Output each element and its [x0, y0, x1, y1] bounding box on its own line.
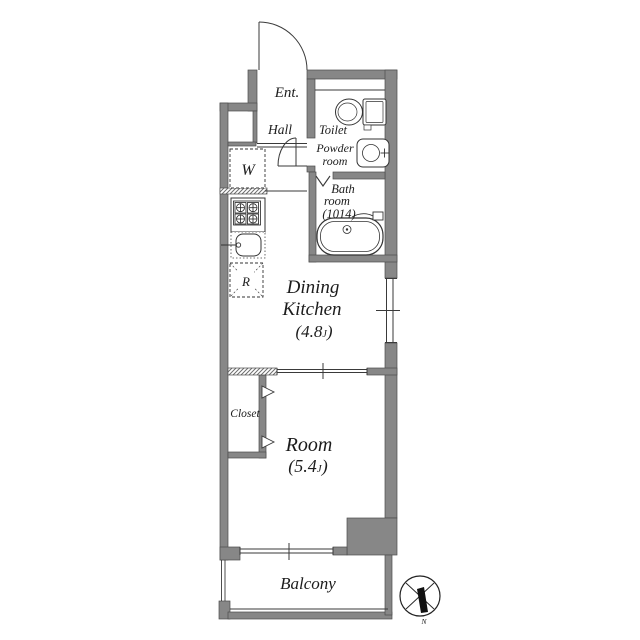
balcony-window — [240, 543, 333, 560]
hall-label: Hall — [267, 122, 292, 137]
wall-room-bottom-left — [220, 547, 240, 560]
wall-balcony-bottom — [228, 612, 392, 619]
powder-room-fixtures — [357, 139, 389, 167]
toilet-flush-button — [364, 125, 371, 130]
wall-toilet-left-upper — [307, 79, 315, 138]
wall-right-upper — [385, 70, 397, 278]
wall-nook-right — [253, 111, 257, 143]
refrigerator-label: R — [241, 274, 250, 289]
balcony-label: Balcony — [280, 574, 336, 593]
floor-plan-image: Ent. Hall Toilet Powder room Bath room (… — [0, 0, 640, 640]
kitchen-counter — [231, 198, 265, 232]
closet-arrow-icon — [262, 436, 274, 448]
bath-room-label-3: (1014) — [322, 207, 355, 221]
hatched-wall-dk-room — [228, 368, 277, 375]
dk-window — [376, 279, 400, 343]
toilet-bowl-inner — [338, 103, 357, 121]
bathtub-inner — [321, 222, 380, 252]
closet-arrow-icon — [262, 386, 274, 398]
bath-room-label-2: room — [324, 194, 350, 208]
hall-door-icon — [278, 138, 296, 166]
north-compass-icon: N — [400, 576, 440, 626]
wall-balcony-right — [385, 555, 392, 615]
closet-label: Closet — [230, 408, 260, 420]
wall-nook-bottom — [228, 142, 256, 146]
dining-kitchen-label-1: Dining — [286, 277, 340, 298]
wall-bath-left — [309, 172, 316, 262]
washing-machine-label: W — [241, 162, 256, 179]
floor-plan-svg: Ent. Hall Toilet Powder room Bath room (… — [0, 0, 640, 640]
toilet-tank-inner — [366, 102, 383, 123]
room-labels: Ent. Hall Toilet Powder room Bath room (… — [230, 85, 355, 593]
wall-divider-right — [367, 368, 397, 375]
wall-closet-bottom — [228, 452, 266, 458]
entrance-step — [257, 144, 307, 148]
wall-bath-top — [333, 172, 385, 179]
wall-left-main — [220, 103, 228, 560]
room-area: (5.4J) — [288, 456, 327, 477]
bath-folding-door-icon — [316, 176, 330, 186]
dining-kitchen-label-2: Kitchen — [281, 299, 341, 320]
powder-room-label-2: room — [323, 154, 348, 168]
wall-top-right — [307, 70, 397, 79]
dk-room-sliding-door — [277, 363, 367, 379]
room-label: Room — [285, 434, 333, 456]
compass-north-label: N — [420, 617, 427, 626]
entrance-label: Ent. — [274, 85, 300, 101]
wall-room-bottom-mid — [333, 547, 347, 555]
wall-notch-bottom-right — [347, 518, 397, 555]
wall-bath-bottom — [309, 255, 397, 262]
washbasin-bowl — [363, 145, 380, 162]
powder-room-label-1: Powder — [315, 141, 354, 155]
dining-kitchen-area: (4.8J) — [295, 322, 332, 341]
bathtub-drain-dot — [346, 228, 348, 230]
toilet-label: Toilet — [319, 123, 348, 137]
bath-faucet — [373, 212, 383, 220]
wall-toilet-left-lower — [307, 166, 315, 172]
hatched-wall-under-w — [220, 188, 267, 194]
entrance-door-icon — [259, 22, 307, 70]
